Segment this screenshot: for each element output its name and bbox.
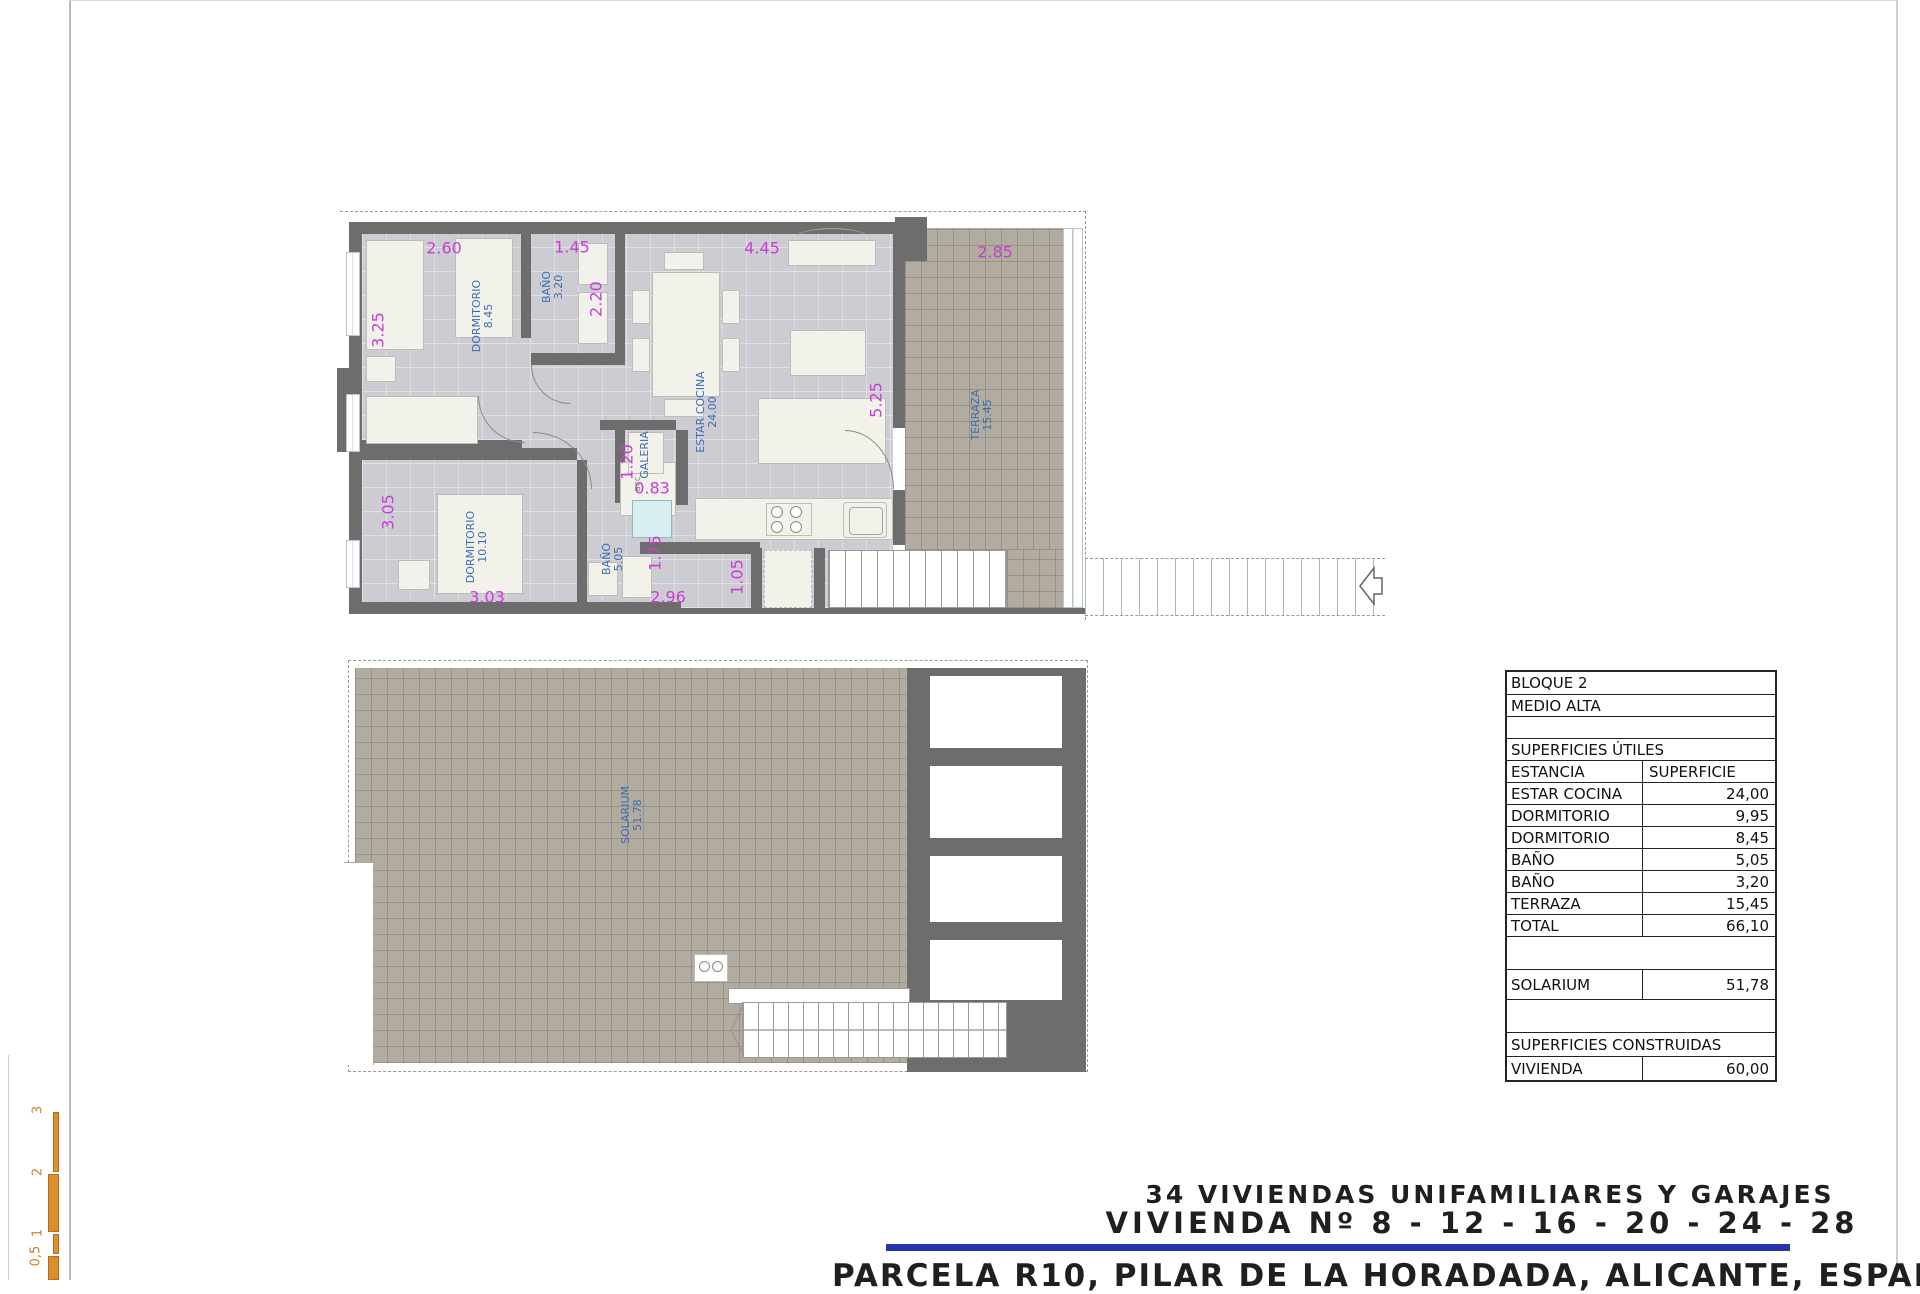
solarium-notch [344, 862, 374, 1065]
table-cell-value: 8,45 [1642, 827, 1775, 848]
room-label: DORMITORIO 8.45 [471, 280, 495, 352]
window [346, 252, 360, 336]
chair [664, 252, 704, 270]
wall [349, 602, 681, 614]
table-row [1507, 999, 1775, 1032]
scale-segment [53, 1234, 59, 1254]
architectural-sheet: { "sheet": { "title_block": { "line1": "… [0, 0, 1920, 1280]
table-cell-label: TOTAL [1507, 916, 1642, 936]
scale-segment [53, 1112, 59, 1172]
table-cell-label: TERRAZA [1507, 894, 1642, 914]
table-cell-label: ESTANCIA [1507, 762, 1642, 782]
chair [722, 290, 740, 324]
table-row: SUPERFICIES CONSTRUIDAS [1507, 1032, 1775, 1056]
table-cell-label: SUPERFICIES ÚTILES [1507, 740, 1775, 760]
tv-unit [790, 330, 866, 376]
table-cell-value: 51,78 [1642, 970, 1775, 999]
table-cell-label [1507, 1015, 1775, 1017]
project-title: 34 VIVIENDAS UNIFAMILIARES Y GARAJES [1140, 1180, 1840, 1209]
scale-label: 3 [31, 1106, 46, 1114]
stair-arrow-icon [729, 1004, 745, 1056]
table-row: DORMITORIO8,45 [1507, 826, 1775, 848]
dimension-label: 3.05 [379, 494, 398, 530]
dimension-label: 2.85 [977, 243, 1013, 262]
room-label: TERRAZA 15.45 [970, 389, 994, 440]
table-row: BAÑO3,20 [1507, 870, 1775, 892]
wall [521, 234, 531, 338]
table-cell-value: 24,00 [1642, 783, 1775, 804]
room-label: ESTAR COCINA 24.00 [695, 371, 719, 452]
nightstand [398, 560, 430, 590]
kitchen-sink-basin [849, 507, 883, 535]
walkway [1085, 558, 1385, 616]
table-cell-label: ESTAR COCINA [1507, 784, 1642, 804]
dimension-label: 2.96 [650, 588, 686, 607]
chair [632, 290, 650, 324]
room-label: BAÑO 5.05 [601, 543, 625, 575]
frame-right-line [1896, 0, 1898, 1280]
dimension-label: 1.20 [618, 444, 637, 480]
wall [814, 548, 825, 610]
wall [893, 490, 905, 545]
table-row: VIVIENDA60,00 [1507, 1056, 1775, 1080]
terraza-tiles-lower [1007, 550, 1063, 608]
wall [600, 420, 676, 430]
dimension-label: 3.25 [369, 312, 388, 348]
table-cell-label: DORMITORIO [1507, 828, 1642, 848]
table-cell-label: BAÑO [1507, 872, 1642, 892]
room-label: SOLARIUM 51.78 [620, 786, 644, 844]
dimension-label: 1.75 [646, 535, 665, 571]
room-label: DORMITORIO 10.10 [465, 511, 489, 583]
dimension-label: 1.05 [728, 559, 747, 595]
burner [771, 521, 783, 533]
table-cell-label: MEDIO ALTA [1507, 696, 1775, 716]
dresser [366, 396, 478, 444]
table-cell-label: BLOQUE 2 [1507, 673, 1775, 693]
frame-top-line [69, 0, 1897, 1]
structure-opening [930, 676, 1062, 748]
annotation-label: acc [633, 476, 643, 491]
scale-label: 1 [31, 1229, 46, 1237]
table-cell-value: 60,00 [1642, 1057, 1775, 1080]
vent-circle [712, 961, 723, 972]
table-row: TERRAZA15,45 [1507, 892, 1775, 914]
paper-edge-line [8, 1055, 9, 1280]
window [346, 540, 360, 588]
room-label: BAÑO 3.20 [541, 271, 565, 303]
terraza-window-strip [1063, 228, 1083, 608]
burner [790, 521, 802, 533]
location-title: PARCELA R10, PILAR DE LA HORADADA, ALICA… [832, 1258, 1858, 1294]
table-row [1507, 936, 1775, 969]
table-row: BAÑO5,05 [1507, 848, 1775, 870]
table-row: ESTAR COCINA24,00 [1507, 782, 1775, 804]
washer-window [632, 500, 672, 538]
table-row: BLOQUE 2 [1507, 672, 1775, 694]
wall [680, 608, 1086, 614]
table-cell-label: BAÑO [1507, 850, 1642, 870]
dimension-label: 2.20 [587, 281, 606, 317]
table-row: DORMITORIO9,95 [1507, 804, 1775, 826]
scale-label: 0,5 [29, 1246, 44, 1267]
title-divider-rule [886, 1244, 1790, 1251]
wall [895, 217, 927, 261]
burner [790, 506, 802, 518]
table-cell-value: 3,20 [1642, 871, 1775, 892]
dimension-label: 2.60 [426, 239, 462, 258]
table-row: TOTAL66,10 [1507, 914, 1775, 936]
table-row: MEDIO ALTA [1507, 694, 1775, 716]
scale-segment [48, 1174, 59, 1232]
wall [615, 234, 625, 365]
structure-opening [930, 766, 1062, 838]
wall [676, 430, 688, 505]
dimension-label: 3.03 [469, 588, 505, 607]
table-row: SOLARIUM51,78 [1507, 969, 1775, 999]
sideboard [788, 240, 876, 266]
table-cell-value: 66,10 [1642, 915, 1775, 936]
scale-segment [48, 1256, 59, 1280]
direction-arrow-icon [1358, 566, 1384, 606]
stairs [828, 550, 1007, 608]
stairs [742, 1002, 1007, 1058]
nightstand [366, 356, 396, 382]
dimension-label: 4.45 [744, 239, 780, 258]
closet [764, 550, 812, 608]
table-cell-value: SUPERFICIE [1642, 761, 1775, 782]
vent-circle [699, 961, 710, 972]
surface-area-table: BLOQUE 2MEDIO ALTASUPERFICIES ÚTILESESTA… [1505, 670, 1777, 1082]
table-cell-value: 5,05 [1642, 849, 1775, 870]
table-cell-label: SUPERFICIES CONSTRUIDAS [1507, 1035, 1775, 1055]
table-cell-label [1507, 727, 1775, 729]
dwelling-numbers-title: VIVIENDA Nº 8 - 12 - 16 - 20 - 24 - 28 [1102, 1206, 1862, 1240]
dimension-label: 1.45 [554, 238, 590, 257]
table-cell-label: DORMITORIO [1507, 806, 1642, 826]
table-cell-value: 9,95 [1642, 805, 1775, 826]
burner [771, 506, 783, 518]
structure-opening [930, 856, 1062, 922]
room-label: GALERIA [639, 431, 651, 479]
dimension-label: 5.25 [867, 382, 886, 418]
chair [722, 338, 740, 372]
structure-opening [930, 940, 1062, 1000]
table-row: SUPERFICIES ÚTILES [1507, 738, 1775, 760]
table-row [1507, 716, 1775, 738]
table-row: ESTANCIASUPERFICIE [1507, 760, 1775, 782]
table-cell-label: VIVIENDA [1507, 1059, 1642, 1079]
frame-left-line [69, 0, 71, 1280]
table-cell-value: 15,45 [1642, 893, 1775, 914]
table-cell-label [1507, 952, 1775, 954]
scale-label: 2 [31, 1168, 46, 1176]
dashed-outline-top [340, 211, 1086, 212]
wall [751, 548, 762, 610]
chair [632, 338, 650, 372]
window [346, 394, 360, 452]
wall [531, 353, 625, 365]
table-cell-label: SOLARIUM [1507, 975, 1642, 995]
